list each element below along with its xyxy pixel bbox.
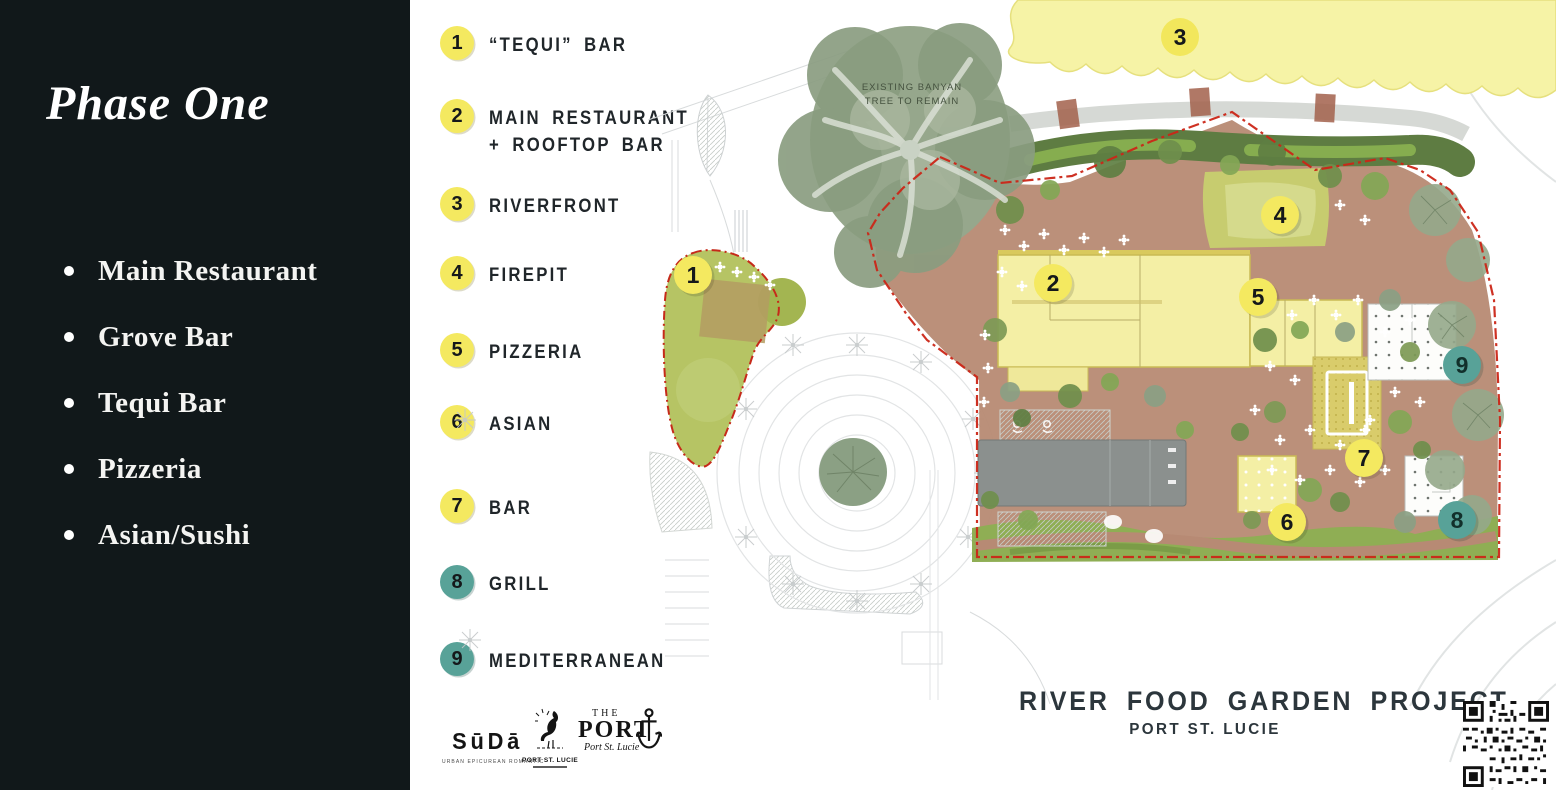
svg-text:5: 5 [1252,284,1265,310]
project-title-block: RIVER FOOD GARDEN PROJECT PORT ST. LUCIE [1005,686,1405,739]
svg-text:7: 7 [1358,445,1371,471]
list-item: Asian/Sushi [64,502,317,568]
svg-text:9: 9 [1456,352,1469,378]
list-item: Main Restaurant [64,238,317,304]
phase-panel: Phase One Main Restaurant Grove Bar Tequ… [0,0,410,790]
banyan-note: EXISTING BANYAN [862,82,962,93]
bullet-label: Pizzeria [98,453,202,486]
svg-text:8: 8 [1451,507,1464,533]
port-st-lucie-logo: PORT ST. LUCIE [522,708,578,768]
phase-title: Phase One [46,76,270,131]
plaza-tree [819,438,887,506]
the-port-logo: THE PORT Port St. Lucie [578,708,664,753]
svg-text:1: 1 [687,262,700,288]
port-st-lucie-tagline-rule [533,766,567,768]
svg-text:6: 6 [1281,509,1294,535]
project-subtitle: PORT ST. LUCIE [1015,721,1395,739]
suda-wordmark: SūDā [442,728,533,755]
bullet-icon [64,398,74,408]
heron-icon [535,708,565,750]
bullet-label: Asian/Sushi [98,519,250,552]
port-st-lucie-wordmark: PORT ST. LUCIE [522,757,578,764]
svg-text:4: 4 [1274,202,1287,228]
anchor-icon [636,706,662,752]
svg-text:3: 3 [1174,24,1187,50]
site-plan-map: EXISTING BANYAN TREE TO REMAIN 1 2 3 4 5 [410,0,1556,790]
banyan-note: TREE TO REMAIN [865,96,959,107]
qr-code [1463,701,1549,787]
list-item: Pizzeria [64,436,317,502]
sketch-leaf [697,95,725,176]
list-item: Tequi Bar [64,370,317,436]
slide: { "sidebar": { "title": "Phase One", "bu… [0,0,1556,790]
project-title: RIVER FOOD GARDEN PROJECT [1019,686,1391,717]
bullet-icon [64,266,74,276]
bullet-label: Tequi Bar [98,387,226,420]
svg-text:2: 2 [1047,270,1060,296]
bullet-label: Main Restaurant [98,255,317,288]
bullet-icon [64,530,74,540]
bullet-label: Grove Bar [98,321,233,354]
map-marker-3: 3 [1161,18,1199,56]
bullet-icon [64,332,74,342]
list-item: Grove Bar [64,304,317,370]
logo-row: SūDā URBAN EPICUREAN ROMANTIC PORT ST. L… [438,700,668,788]
riverfront-band [1009,0,1556,98]
phase-bullet-list: Main Restaurant Grove Bar Tequi Bar Pizz… [64,238,317,568]
bullet-icon [64,464,74,474]
